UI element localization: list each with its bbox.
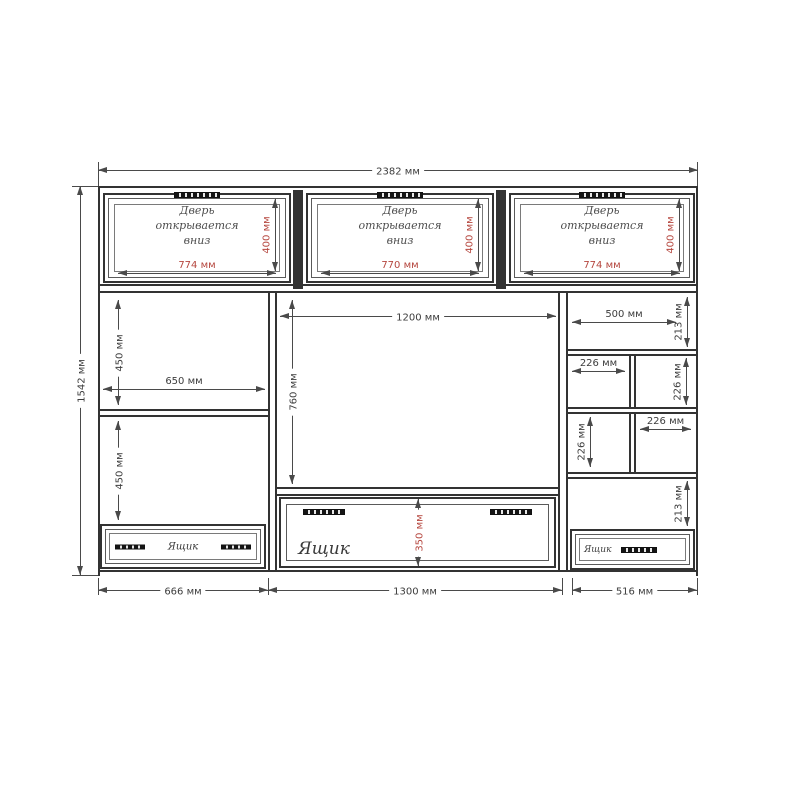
dim-door-width: 774 мм [524,273,680,274]
extension-line [562,578,563,595]
dim-label: 500 мм [603,309,644,320]
dim-label: 2382 мм [372,167,424,178]
drawer-label: Ящик [298,539,350,559]
plinth-band [100,570,696,576]
dim-label: 226 мм [577,420,588,463]
drawer-handle [621,547,657,553]
dim-door-height: 400 мм [478,199,479,271]
dim-left-shelf-width: 650 мм [103,389,265,390]
dim-cell-top-right-height: 226 мм [686,358,687,405]
door-divider [293,190,303,289]
extension-line [72,575,98,576]
flap-door-2: Дверь открывается вниз 770 мм 400 мм [306,193,494,283]
dim-label: 516 мм [612,587,657,598]
extension-line [98,162,99,186]
dim-label: 1200 мм [392,313,444,324]
dim-door-width: 774 мм [118,273,276,274]
dim-bottom-right-width: 516 мм [572,590,697,591]
drawer-label: Ящик [102,541,264,552]
left-shelf [100,409,268,417]
dim-bottom-left-width: 666 мм [98,590,268,591]
dim-label: 213 мм [674,300,685,343]
extension-line [72,186,98,187]
drawer-handle [490,509,532,515]
dim-right-lower-height: 213 мм [687,481,688,526]
center-shelf [277,487,558,496]
furniture-assembly-drawing: 2382 мм 1542 мм Дверь открывается вниз 7… [0,0,800,800]
dim-label: 650 мм [163,376,204,387]
drawer-label: Ящик [584,545,611,555]
dim-label: 450 мм [115,447,126,494]
door-handle [174,192,220,198]
right-lower-shelf [568,472,696,479]
dim-niche-width: 1200 мм [280,316,556,317]
dim-label: 450 мм [115,329,126,376]
dim-overall-height: 1542 мм [80,186,81,575]
dim-right-top-height: 213 мм [687,297,688,347]
extension-line [697,162,698,186]
dim-label: 1300 мм [389,587,441,598]
dim-overall-width: 2382 мм [98,170,698,171]
dim-bottom-center-width: 1300 мм [268,590,562,591]
dim-label: 350 мм [415,509,426,556]
drawer-handle [303,509,345,515]
dim-label: 226 мм [578,358,619,369]
dim-label: 400 мм [666,213,677,256]
dim-cell-bottom-left-height: 226 мм [590,417,591,467]
dim-cell-top-left-width: 226 мм [572,371,625,372]
right-grid-shelf [568,407,696,414]
dim-left-lower-height: 450 мм [118,421,119,520]
dim-label: 774 мм [581,260,622,271]
dim-label: 1542 мм [77,354,88,408]
right-shelf [568,349,696,356]
left-drawer: Ящик [100,524,266,569]
dim-label: 400 мм [465,213,476,256]
extension-line [697,578,698,595]
flap-door-1: Дверь открывается вниз 774 мм 400 мм [103,193,291,283]
top-shelf-band [100,284,696,293]
partition-left-center [268,293,277,570]
dim-label: 770 мм [379,260,420,271]
dim-door-height: 400 мм [679,199,680,271]
door-handle [579,192,625,198]
door-divider [496,190,506,289]
dim-label: 400 мм [262,213,273,256]
dim-center-drawer-height: 350 мм [418,499,419,566]
right-drawer: Ящик [570,529,695,570]
door-handle [377,192,423,198]
dim-right-top-width: 500 мм [572,322,676,323]
dim-door-height: 400 мм [275,199,276,271]
dim-label: 213 мм [674,482,685,525]
dim-cell-bottom-right-width: 226 мм [640,429,691,430]
dim-niche-height: 760 мм [292,300,293,484]
right-grid-divider [629,356,636,472]
partition-center-right [558,293,568,570]
dim-door-width: 770 мм [321,273,479,274]
dim-label: 774 мм [176,260,217,271]
flap-door-3: Дверь открывается вниз 774 мм 400 мм [509,193,695,283]
dim-label: 760 мм [289,368,300,415]
dim-label: 226 мм [645,416,686,427]
dim-label: 666 мм [160,587,205,598]
dim-label: 226 мм [673,360,684,403]
